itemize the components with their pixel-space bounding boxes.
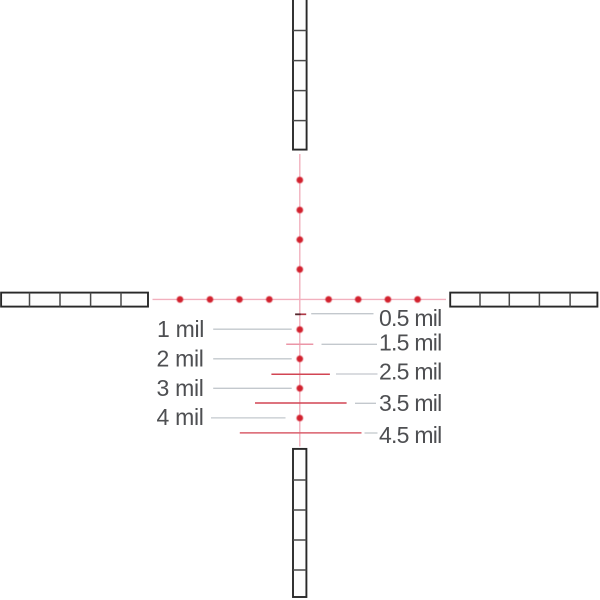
svg-text:1.5 mil: 1.5 mil — [379, 329, 442, 355]
svg-text:0.5 mil: 0.5 mil — [379, 305, 442, 331]
svg-text:2.5 mil: 2.5 mil — [379, 359, 442, 385]
svg-text:1 mil: 1 mil — [157, 316, 204, 342]
svg-text:4.5 mil: 4.5 mil — [379, 422, 442, 448]
svg-text:2 mil: 2 mil — [157, 345, 204, 371]
svg-text:3 mil: 3 mil — [157, 375, 204, 401]
svg-text:4 mil: 4 mil — [157, 404, 204, 430]
svg-text:3.5 mil: 3.5 mil — [379, 390, 442, 416]
